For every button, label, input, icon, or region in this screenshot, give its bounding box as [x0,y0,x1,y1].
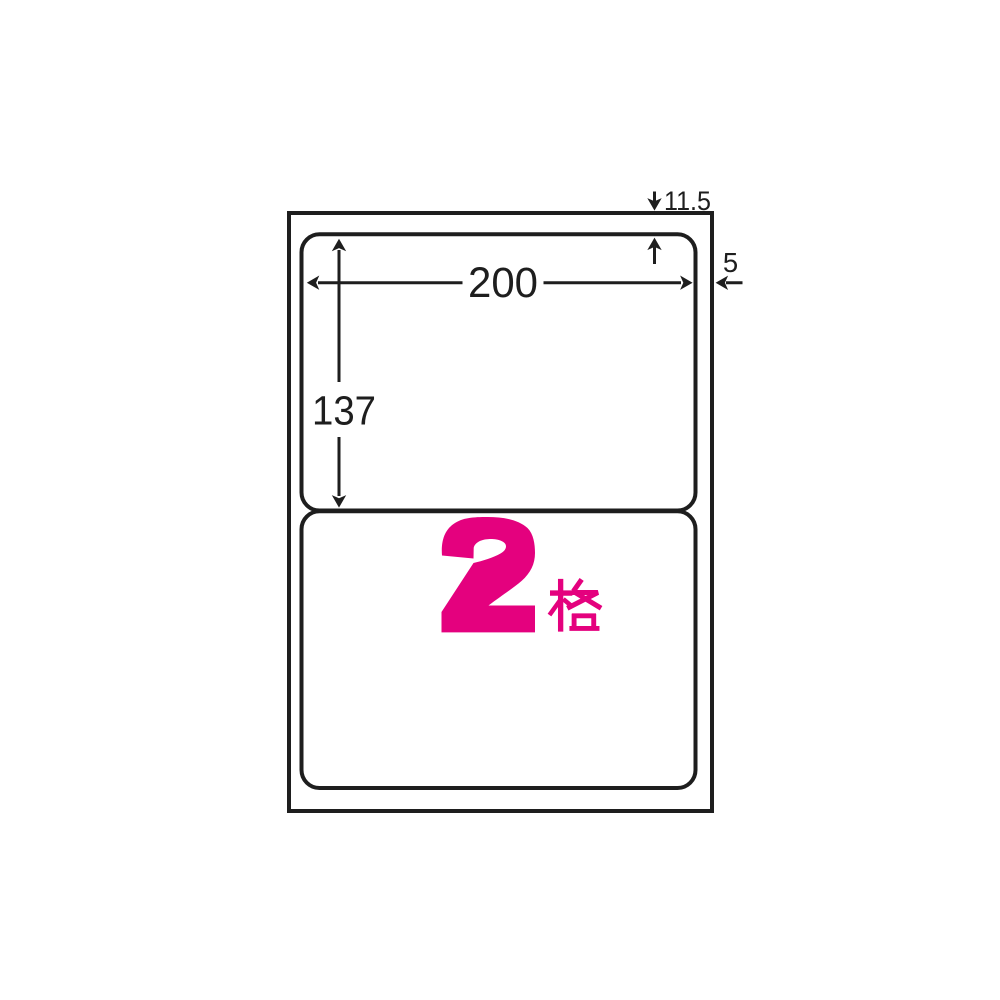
svg-text:137: 137 [312,388,376,434]
svg-text:5: 5 [723,247,738,278]
svg-text:11.5: 11.5 [664,186,711,216]
svg-text:200: 200 [468,259,538,307]
